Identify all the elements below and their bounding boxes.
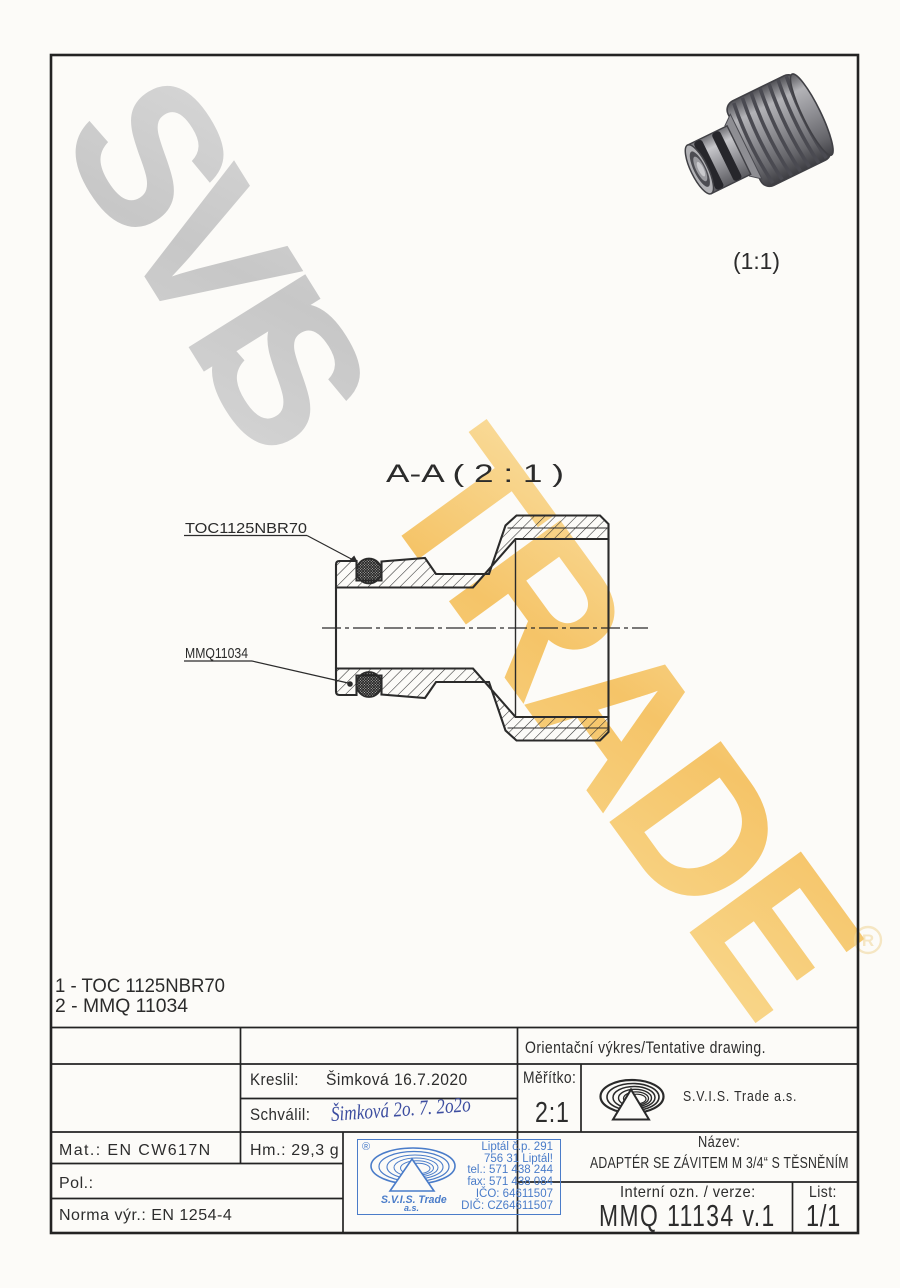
svg-text:(1:1): (1:1) [733, 248, 780, 274]
svg-text:A-A ( 2 : 1 ): A-A ( 2 : 1 ) [386, 460, 564, 488]
svg-text:2 - MMQ 11034: 2 - MMQ 11034 [55, 996, 188, 1017]
svg-text:MMQ11034: MMQ11034 [185, 645, 248, 662]
svg-text:1 - TOC 1125NBR70: 1 - TOC 1125NBR70 [55, 976, 225, 997]
svg-text:TOC1125NBR70: TOC1125NBR70 [185, 520, 307, 537]
